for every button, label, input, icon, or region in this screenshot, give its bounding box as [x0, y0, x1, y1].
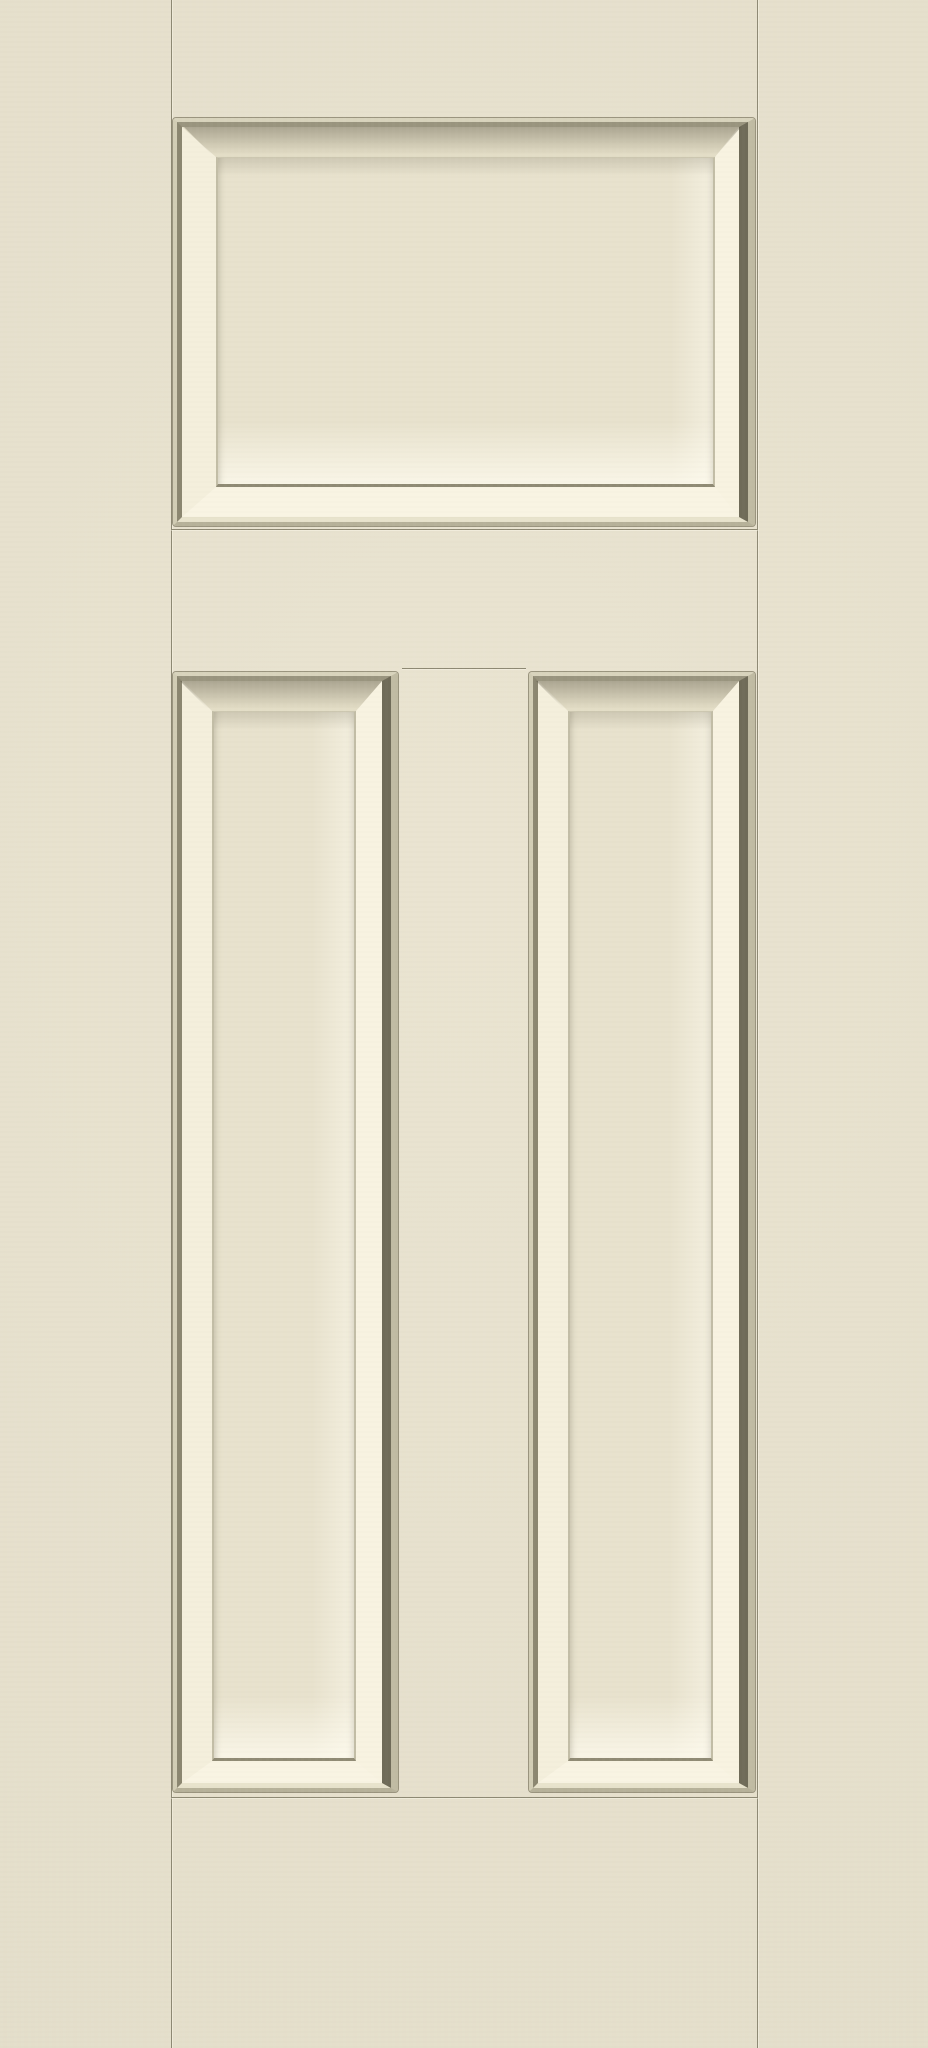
- lower-left-panel: [173, 672, 398, 1792]
- top-panel-field: [216, 157, 715, 487]
- lower-left-panel-bevel-shadow: [180, 681, 382, 711]
- top-panel-bevel-shadow: [184, 127, 741, 157]
- middle-rail-seam-line: [171, 529, 758, 530]
- lower-left-panel-molding-inner: [177, 676, 391, 1788]
- right-stile-seam-line: [757, 0, 758, 2048]
- lower-left-panel-molding-outer: [173, 672, 398, 1792]
- top-panel-molding-inner: [177, 122, 748, 522]
- lower-right-panel: [529, 672, 755, 1792]
- top-panel: [173, 118, 755, 526]
- lower-left-panel-bevel: [182, 681, 382, 1783]
- center-stile-top-seam-line: [402, 668, 526, 669]
- lower-right-panel-molding-outer: [529, 672, 755, 1792]
- bottom-rail-seam-line: [171, 1797, 758, 1798]
- door-slab-photo: [0, 0, 928, 2048]
- lower-left-panel-field: [212, 711, 356, 1761]
- lower-right-panel-bevel: [538, 681, 739, 1783]
- lower-right-panel-molding-inner: [533, 676, 748, 1788]
- top-panel-bevel: [182, 127, 739, 517]
- top-panel-molding-outer: [173, 118, 755, 526]
- lower-right-panel-field: [568, 711, 713, 1761]
- lower-right-panel-bevel-shadow: [536, 681, 739, 711]
- left-stile-seam-line: [171, 0, 172, 2048]
